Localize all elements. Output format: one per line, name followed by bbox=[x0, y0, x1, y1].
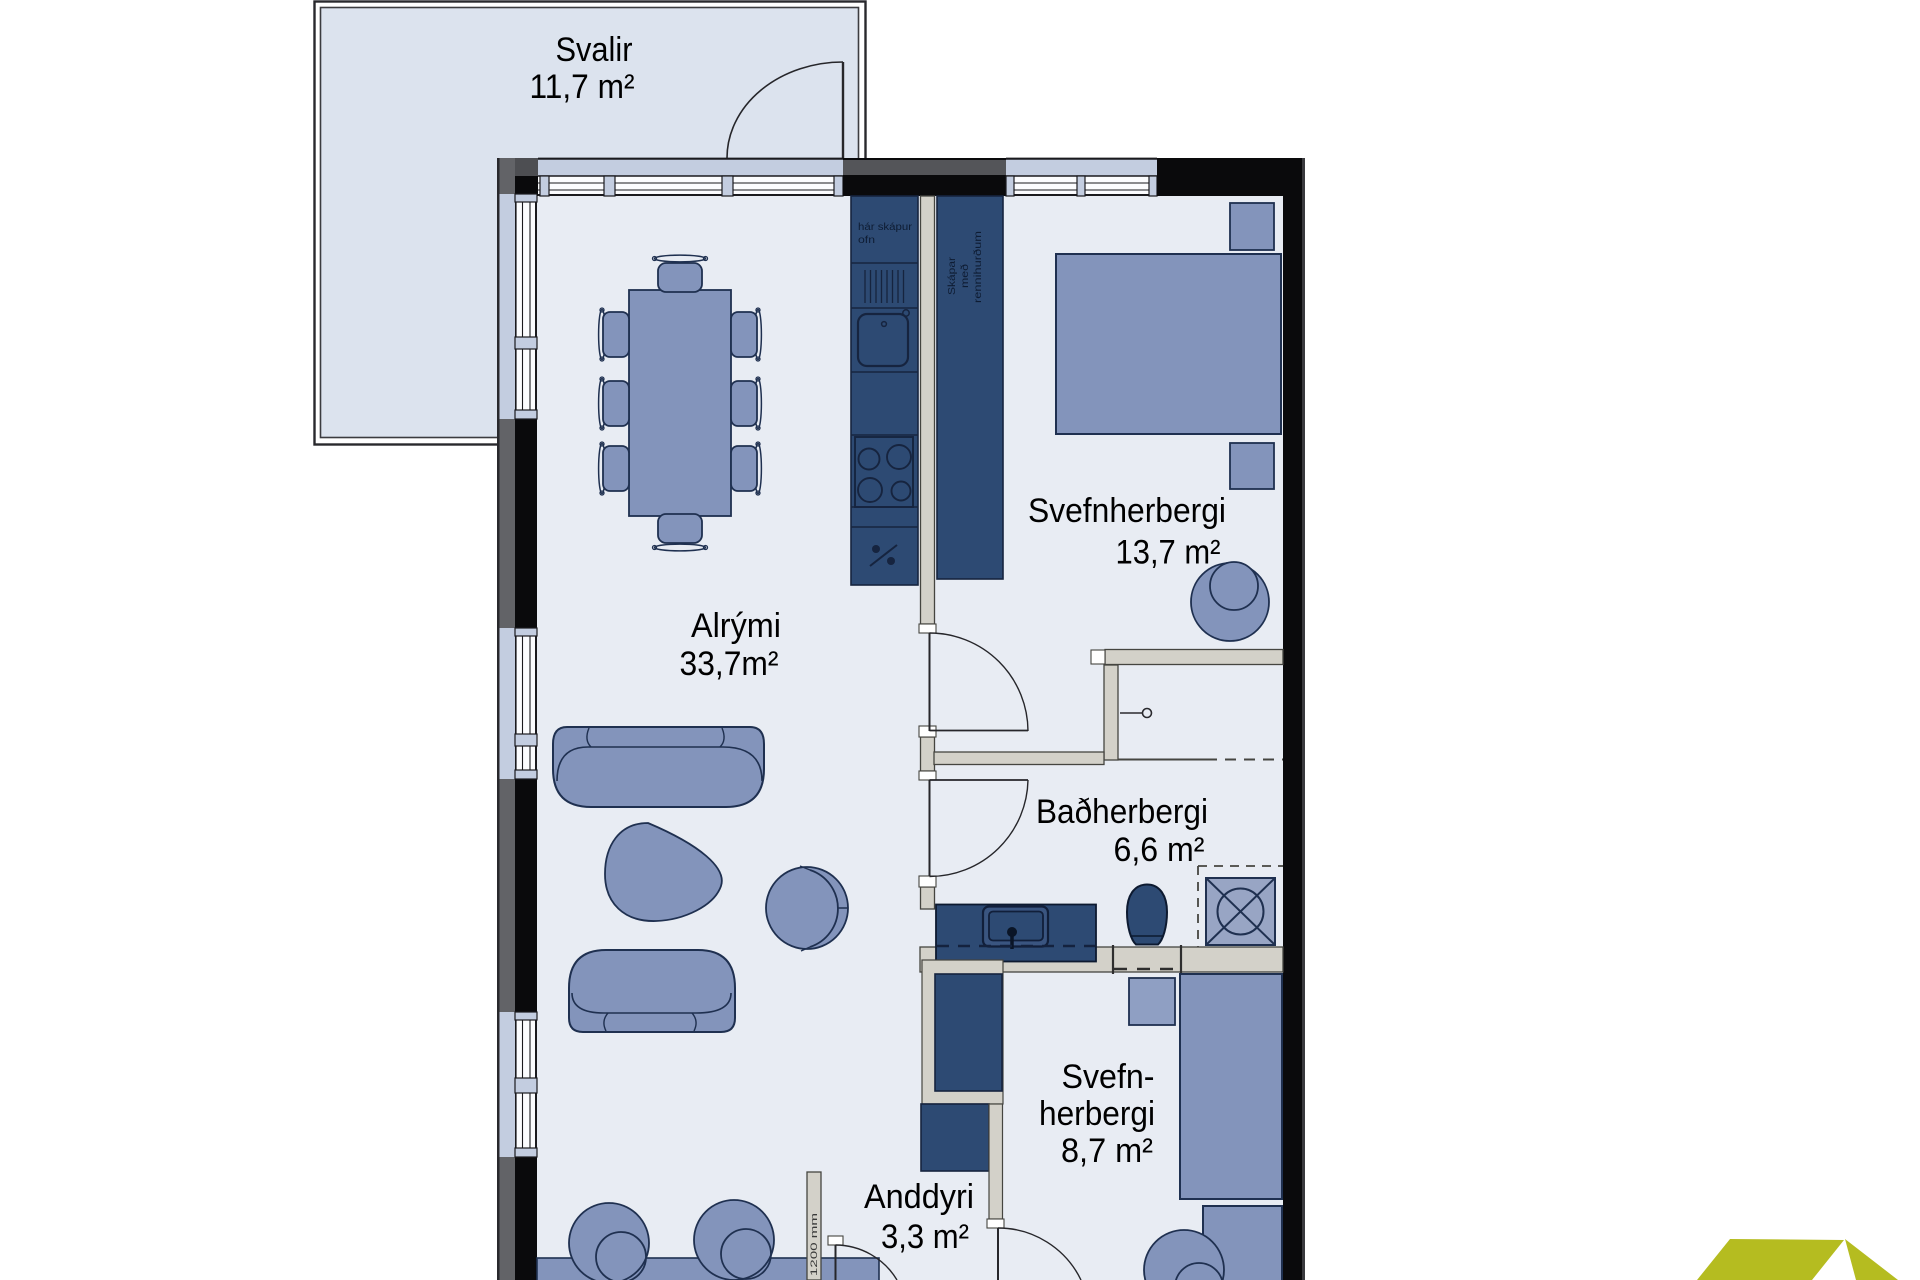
svg-text:3,3 m²: 3,3 m² bbox=[881, 1218, 969, 1256]
svg-text:11,7 m²: 11,7 m² bbox=[530, 68, 635, 106]
svg-text:Svefnherbergi: Svefnherbergi bbox=[1028, 492, 1226, 530]
svg-text:ofn: ofn bbox=[858, 235, 875, 246]
svg-text:8,7 m²: 8,7 m² bbox=[1061, 1132, 1153, 1170]
svg-text:6,6 m²: 6,6 m² bbox=[1114, 831, 1205, 869]
svg-text:herbergi: herbergi bbox=[1039, 1095, 1155, 1133]
svg-text:Svalir: Svalir bbox=[556, 31, 633, 69]
svg-text:Alrými: Alrými bbox=[691, 607, 781, 645]
svg-text:rennihurðum: rennihurðum bbox=[972, 231, 984, 303]
svg-text:Svefn-: Svefn- bbox=[1062, 1058, 1155, 1096]
svg-text:33,7m²: 33,7m² bbox=[680, 645, 779, 683]
svg-text:Baðherbergi: Baðherbergi bbox=[1036, 793, 1208, 831]
svg-text:með: með bbox=[959, 263, 971, 288]
svg-text:h. 1200 mm: h. 1200 mm bbox=[809, 1213, 820, 1280]
svg-text:hár skápur: hár skápur bbox=[858, 222, 913, 233]
svg-text:Skápar: Skápar bbox=[947, 256, 958, 295]
svg-text:13,7 m²: 13,7 m² bbox=[1116, 534, 1221, 572]
svg-text:Anddyri: Anddyri bbox=[864, 1178, 974, 1216]
